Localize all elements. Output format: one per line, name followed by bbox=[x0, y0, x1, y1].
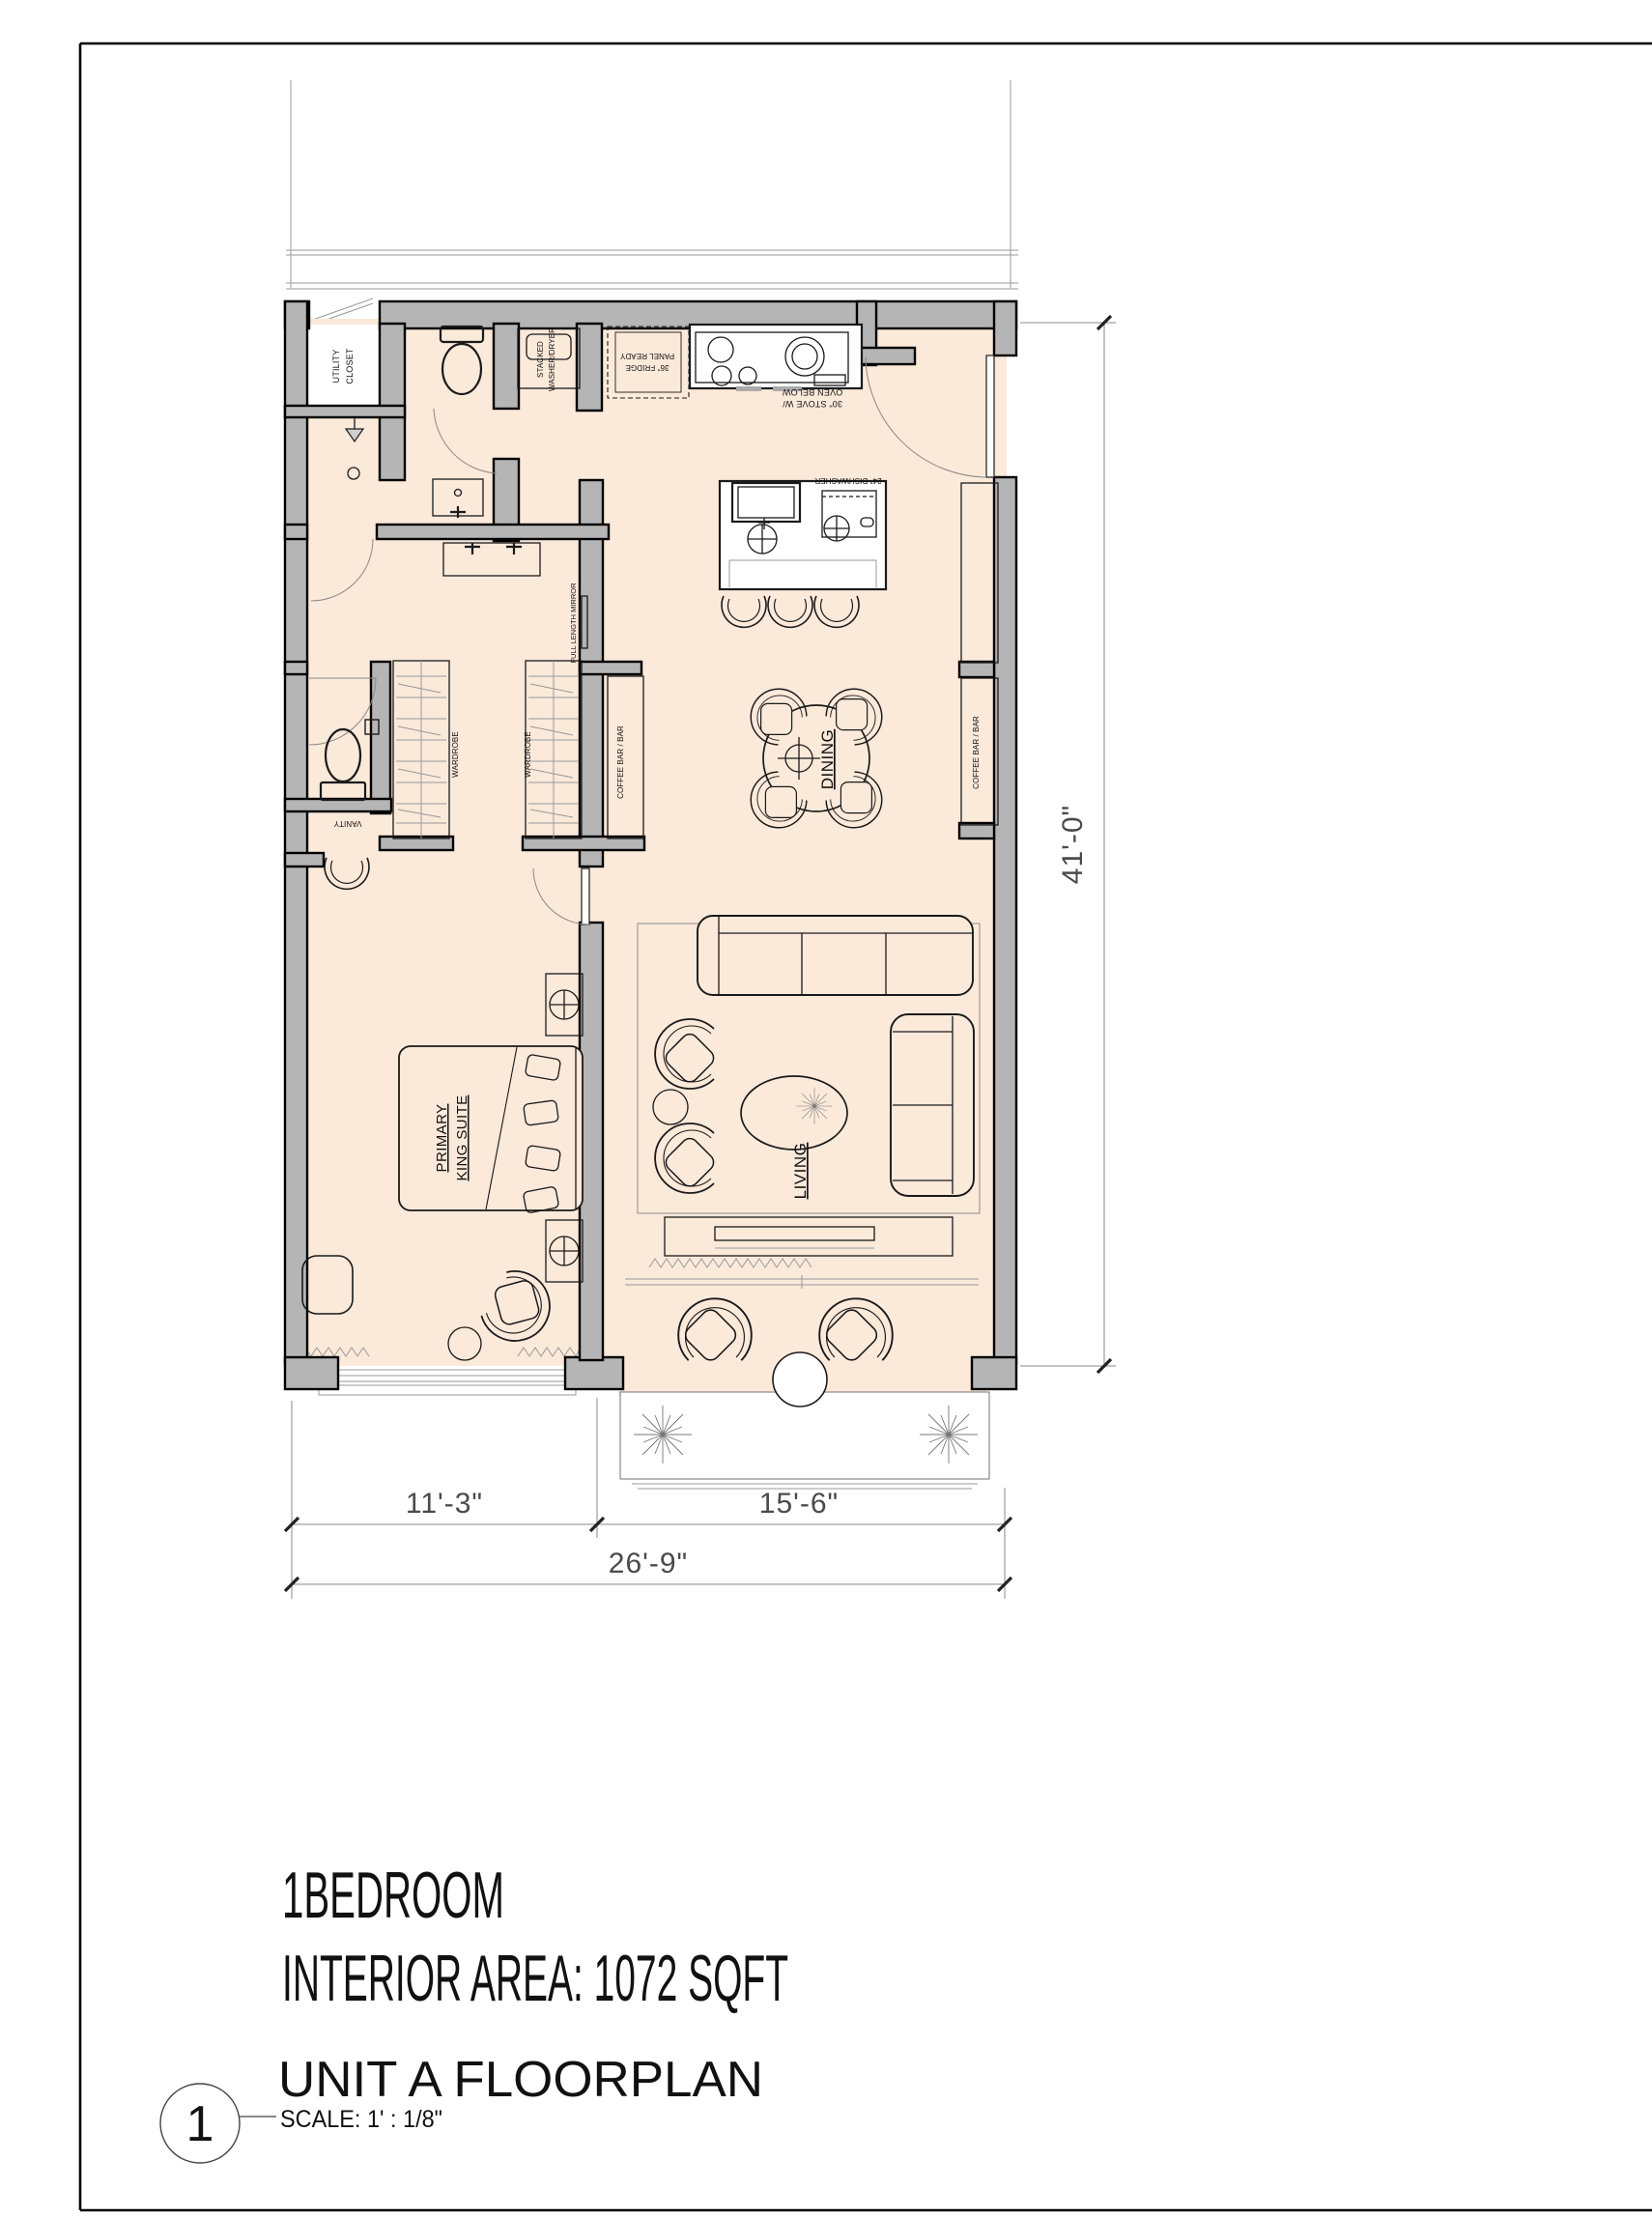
label-washer-1: STACKED bbox=[536, 341, 545, 378]
bedroom-door-leaf bbox=[582, 868, 589, 924]
label-wardrobe-right: WARDROBE bbox=[524, 731, 532, 778]
kitchen-counter bbox=[690, 325, 862, 388]
area-title: 1BEDROOM INTERIOR AREA: 1072 SQFT bbox=[282, 1859, 788, 2015]
label-coffee-bar-left: COFFEE BAR / BAR bbox=[616, 725, 625, 799]
label-dishwasher: 24" DISHWASHER bbox=[814, 476, 881, 485]
area-title-line2: INTERIOR AREA: 1072 SQFT bbox=[282, 1942, 788, 2015]
label-mirror: FULL LENGTH MIRROR bbox=[569, 583, 578, 664]
balcony-plant-left bbox=[634, 1406, 692, 1464]
label-fridge-2: PANEL READY bbox=[619, 352, 674, 360]
dim-width-bedroom: 11'-3" bbox=[406, 1488, 483, 1520]
utility-closet-floor bbox=[305, 325, 383, 408]
label-utility-closet-2: CLOSET bbox=[345, 348, 355, 384]
label-vanity: VANITY bbox=[333, 819, 361, 828]
area-title-line1: 1BEDROOM bbox=[282, 1859, 504, 1932]
dim-width-living: 15'-6" bbox=[759, 1488, 839, 1520]
label-stove-2: OVEN BELOW bbox=[782, 387, 842, 397]
sheet-name: UNIT A FLOORPLAN bbox=[278, 2052, 763, 2108]
label-stove-1: 30" STOVE W/ bbox=[783, 399, 842, 409]
dim-height-total: 41'-0" bbox=[1057, 805, 1089, 884]
label-coffee-bar-right: COFFEE BAR / BAR bbox=[972, 716, 981, 789]
coffee-table-plant bbox=[796, 1088, 832, 1123]
label-dining: DINING bbox=[818, 729, 837, 790]
label-primary-1: PRIMARY bbox=[434, 1104, 450, 1173]
label-wardrobe-left: WARDROBE bbox=[451, 731, 460, 778]
terrace-table bbox=[773, 1352, 827, 1407]
sheet-number: 1 bbox=[186, 2096, 214, 2152]
sheet-title: 1 UNIT A FLOORPLAN SCALE: 1' : 1/8" bbox=[160, 2052, 763, 2163]
dim-width-total: 26'-9" bbox=[609, 1548, 688, 1579]
corridor-lines bbox=[286, 80, 1018, 327]
label-primary-2: KING SUITE bbox=[454, 1094, 470, 1180]
balcony-plant-right bbox=[920, 1406, 978, 1464]
sheet-scale: SCALE: 1' : 1/8" bbox=[280, 2106, 442, 2133]
coffee-table bbox=[741, 1076, 847, 1150]
entry-door-leaf bbox=[986, 355, 994, 477]
label-washer-2: WASHER/DRYER bbox=[548, 327, 556, 391]
label-utility-closet-1: UTILITY bbox=[331, 350, 341, 384]
sofa bbox=[698, 916, 973, 995]
label-living: LIVING bbox=[791, 1143, 810, 1200]
label-fridge-1: 36" FRIDGE bbox=[625, 363, 669, 372]
sheet-page: UTILITY CLOSET STACKED WASHER/DRYER 36" … bbox=[0, 0, 1652, 2217]
